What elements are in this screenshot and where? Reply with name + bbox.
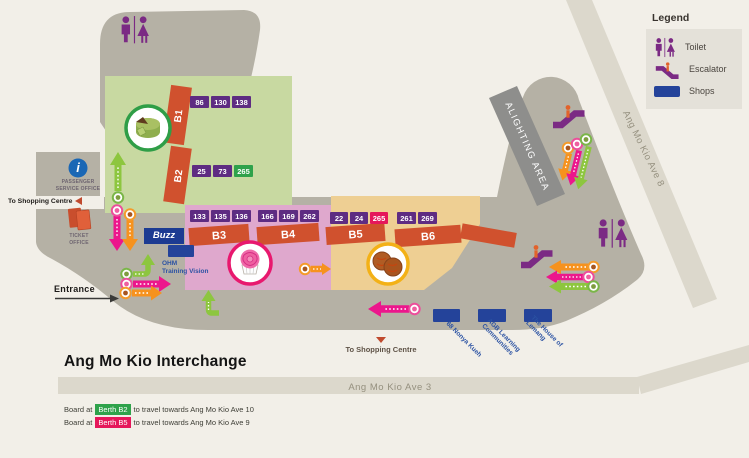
legend-item-escalator: Escalator [654,58,734,80]
legend-box: Toilet Escalator Shops [646,29,742,109]
legend-item-toilet: Toilet [654,36,734,58]
to-shopping-centre-bottom: To Shopping Centre [326,337,436,354]
shop-unit [168,245,194,257]
svg-text:22: 22 [335,214,343,223]
stall-badge-pink [409,304,419,314]
shop-unit [433,309,460,322]
service-chip: 262 [300,210,319,222]
to-shopping-centre-left: To Shopping Centre [8,197,82,205]
stall-badge-green [581,134,591,144]
svg-text:25: 25 [197,167,205,176]
passenger-service-office-label: PASSENGER SERVICE OFFICE [48,179,108,192]
berth-notes: Board at Berth B2 to travel towards Ang … [64,403,254,429]
pink-kueh-icon [229,242,271,284]
service-chip: 86 [190,96,209,108]
stall-badge-orange [125,209,135,219]
legend-label: Toilet [685,42,706,52]
info-icon: i [69,159,88,178]
berth-b5-label: B5 [348,229,363,242]
service-chip: 261 [397,212,416,224]
service-chip: 73 [213,165,232,177]
svg-text:24: 24 [355,214,364,223]
legend-label: Escalator [689,64,727,74]
service-chip: 265 [234,165,253,177]
svg-text:i: i [76,160,80,175]
stall-badge-green [588,281,598,291]
legend-label: Shops [689,86,715,96]
ave3-label-text: Ang Mo Kio Ave 3 [348,382,431,393]
svg-text:133: 133 [193,212,206,221]
cookies-icon [368,244,408,284]
berth-b1-label: B1 [173,109,186,124]
service-chip: 136 [232,210,251,222]
service-chip: 265 [370,212,388,224]
service-chip: 269 [418,212,437,224]
legend: Legend Toilet Escalator Shops [646,12,742,109]
ticket-office-icon [68,207,91,231]
map-canvas: Ang Mo Kio Ave 8 Ang Mo Kio Ave 3 ALIGHT… [0,0,749,458]
svg-text:73: 73 [218,167,226,176]
interchange-map: Ang Mo Kio Ave 8 Ang Mo Kio Ave 3 ALIGHT… [0,0,749,458]
service-chip: 169 [279,210,298,222]
stall-badge-pink [112,205,122,215]
entrance-label: Entrance [54,284,95,294]
berth-b4-label: B4 [281,228,297,241]
ticket-office-label: TICKET OFFICE [52,233,106,246]
svg-text:136: 136 [235,212,248,221]
svg-text:130: 130 [214,98,227,107]
berth-b2-label: B2 [173,169,186,184]
svg-text:261: 261 [400,214,413,223]
service-chip: 24 [350,212,368,224]
svg-text:86: 86 [195,98,203,107]
left-arrow-icon [75,197,82,205]
berth-b2-badge: Berth B2 [95,404,130,415]
service-chip: 25 [192,165,211,177]
shop-buzz: Buzz [144,228,184,244]
service-chip: 133 [190,210,209,222]
svg-text:269: 269 [421,214,434,223]
svg-text:265: 265 [373,214,386,223]
pandan-cake-icon [126,106,170,150]
berth-b5-badge: Berth B5 [95,417,130,428]
svg-text:138: 138 [235,98,248,107]
stall-badge-green [113,192,123,202]
svg-text:265: 265 [237,167,250,176]
shops-swatch [654,86,680,97]
shop-ohm-label: OHM Training Vision [162,260,208,275]
legend-item-shops: Shops [654,80,734,102]
service-chip: 166 [258,210,277,222]
down-arrow-icon [376,337,386,343]
escalator-icon [654,60,680,79]
berth-b6-label: B6 [421,231,436,244]
service-chip: 135 [211,210,230,222]
note-line: Board at Berth B2 to travel towards Ang … [64,403,254,416]
stall-badge-orange [300,264,310,274]
service-chip: 22 [330,212,348,224]
svg-text:166: 166 [261,212,274,221]
note-line: Board at Berth B5 to travel towards Ang … [64,416,254,429]
service-chip: 130 [211,96,230,108]
svg-text:169: 169 [282,212,295,221]
road-elbow [637,345,749,394]
svg-text:135: 135 [214,212,227,221]
berth-b3-label: B3 [212,230,227,243]
toilet-icon [654,37,676,58]
service-chip: 138 [232,96,251,108]
stall-badge-orange [120,288,130,298]
page-title: Ang Mo Kio Interchange [64,353,247,371]
svg-text:262: 262 [303,212,316,221]
stall-badge-orange [588,262,598,272]
stall-badge-green [121,269,131,279]
legend-title: Legend [652,12,742,24]
